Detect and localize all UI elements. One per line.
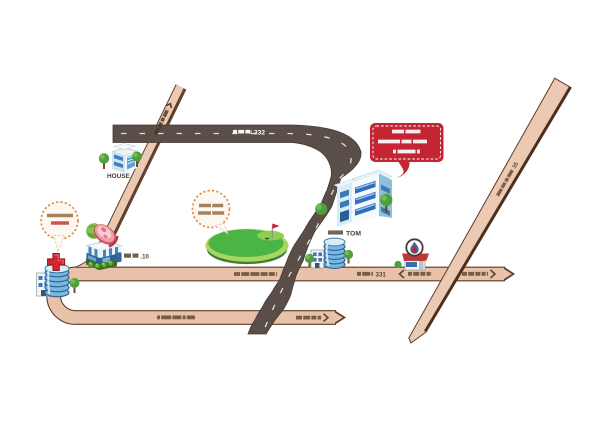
svg-text:.10: .10: [141, 254, 150, 260]
svg-text:TOM: TOM: [346, 231, 361, 238]
svg-text:HOUSE: HOUSE: [107, 173, 130, 180]
svg-text:331: 331: [376, 271, 387, 278]
svg-text:332: 332: [254, 129, 265, 136]
